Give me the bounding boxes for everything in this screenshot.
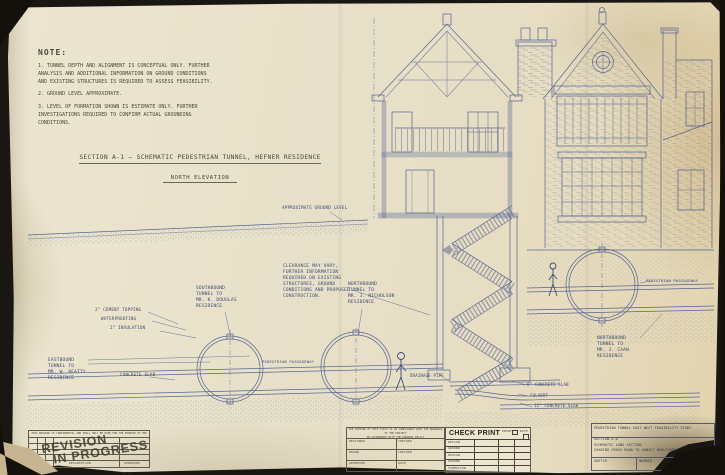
note-item-1: 1. TUNNEL DEPTH AND ALIGNMENT IS CONCEPT…: [38, 63, 283, 86]
label-insulation: 2" INSULATION: [110, 325, 145, 331]
project-sketch-label: SKETCH: [594, 459, 607, 463]
check-print-block: CHECK PRINT PRINT DATE DESIGN GROUND DES…: [445, 427, 531, 473]
label-concrete-slab: CONCRETE SLAB: [120, 372, 155, 378]
label-northbound-caan-tunnel: NORTHBOUND TUNNEL TO MR. J. CAAN RESIDEN…: [597, 336, 629, 360]
label-concrete-slab-6: 6" CONCRETE SLAB: [527, 382, 569, 387]
blueprint-photo: NOTE: 1. TUNNEL DEPTH AND ALIGNMENT IS C…: [0, 0, 725, 475]
project-drawing: SCHEMATIC LONG SECTION: [594, 443, 642, 447]
date-checkbox: [523, 434, 529, 440]
label-passageway-right: PEDESTRIAN PASSAGEWAY: [646, 278, 698, 283]
check-print-title: CHECK PRINT: [449, 430, 500, 438]
notes-title: NOTE:: [38, 48, 283, 57]
signoff-drawn-label: DRAWN: [349, 451, 359, 455]
check-print-row-3: DESIGN: [448, 454, 460, 458]
label-concrete-slab-12: 12" CONCRETE SLAB: [534, 403, 578, 408]
signoff-checked1-label: CHECKED: [398, 440, 412, 444]
project-number-label: NUMBER: [639, 459, 652, 463]
print-checkbox: [512, 430, 518, 436]
signoff-date-label: DATE: [398, 462, 406, 466]
label-ground-level: APPROXIMATE GROUND LEVEL: [282, 205, 347, 211]
signoff-block: THE COPYING OF THIS TITLE IS IN COMPLIAN…: [346, 427, 445, 472]
check-print-row-2: GROUND: [448, 447, 460, 451]
check-print-row-5: FORMATION: [448, 467, 466, 471]
section-title-block: SECTION A-1 — SCHEMATIC PEDESTRIAN TUNNE…: [50, 144, 350, 183]
check-print-print-label: PRINT: [502, 430, 512, 434]
label-passageway-mid: PEDESTRIAN PASSAGEWAY: [262, 359, 314, 364]
check-print-row-4: GROUND: [448, 460, 460, 464]
label-northbound-nicholson-tunnel: NORTHBOUND TUNNEL TO MR. J. NICHOLSON RE…: [348, 282, 395, 306]
label-cement-topping: 2" CEMENT TOPPING: [95, 307, 141, 313]
signoff-approved-label: APPROVED: [349, 462, 365, 466]
label-waterproofing: WATERPROOFING: [101, 316, 136, 322]
project-route: CHARING CROSS ROAD TO SUNSET BOULEVARD: [594, 448, 676, 452]
label-culvert: CULVERT: [530, 393, 548, 398]
revision-approved-label: APPROVED: [124, 462, 140, 466]
section-subtitle: NORTH ELEVATION: [163, 173, 238, 183]
label-southbound-tunnel: SOUTHBOUND TUNNEL TO MR. K. DOUGLAS RESI…: [196, 286, 237, 310]
notes-block: NOTE: 1. TUNNEL DEPTH AND ALIGNMENT IS C…: [38, 48, 283, 132]
note-item-2: 2. GROUND LEVEL APPROXIMATE.: [38, 91, 283, 99]
project-section: SECTION A-A: [594, 437, 618, 441]
note-item-3: 3. LEVEL OF FORMATION SHOWN IS ESTIMATE …: [38, 104, 283, 127]
signoff-designed-label: DESIGNED: [349, 440, 365, 444]
label-eastbound-tunnel: EASTBOUND TUNNEL TO MR. W. BEATTY RESIDE…: [48, 358, 86, 382]
signoff-checked2-label: CHECKED: [398, 451, 412, 455]
section-title: SECTION A-1 — SCHEMATIC PEDESTRIAN TUNNE…: [79, 154, 320, 164]
check-print-row-1: DESIGN: [448, 441, 460, 445]
label-drainage-pipe: DRAINAGE PIPE: [410, 373, 444, 378]
project-title: PEDESTRIAN TUNNEL EAST WEST FEASIBILITY …: [592, 424, 714, 438]
